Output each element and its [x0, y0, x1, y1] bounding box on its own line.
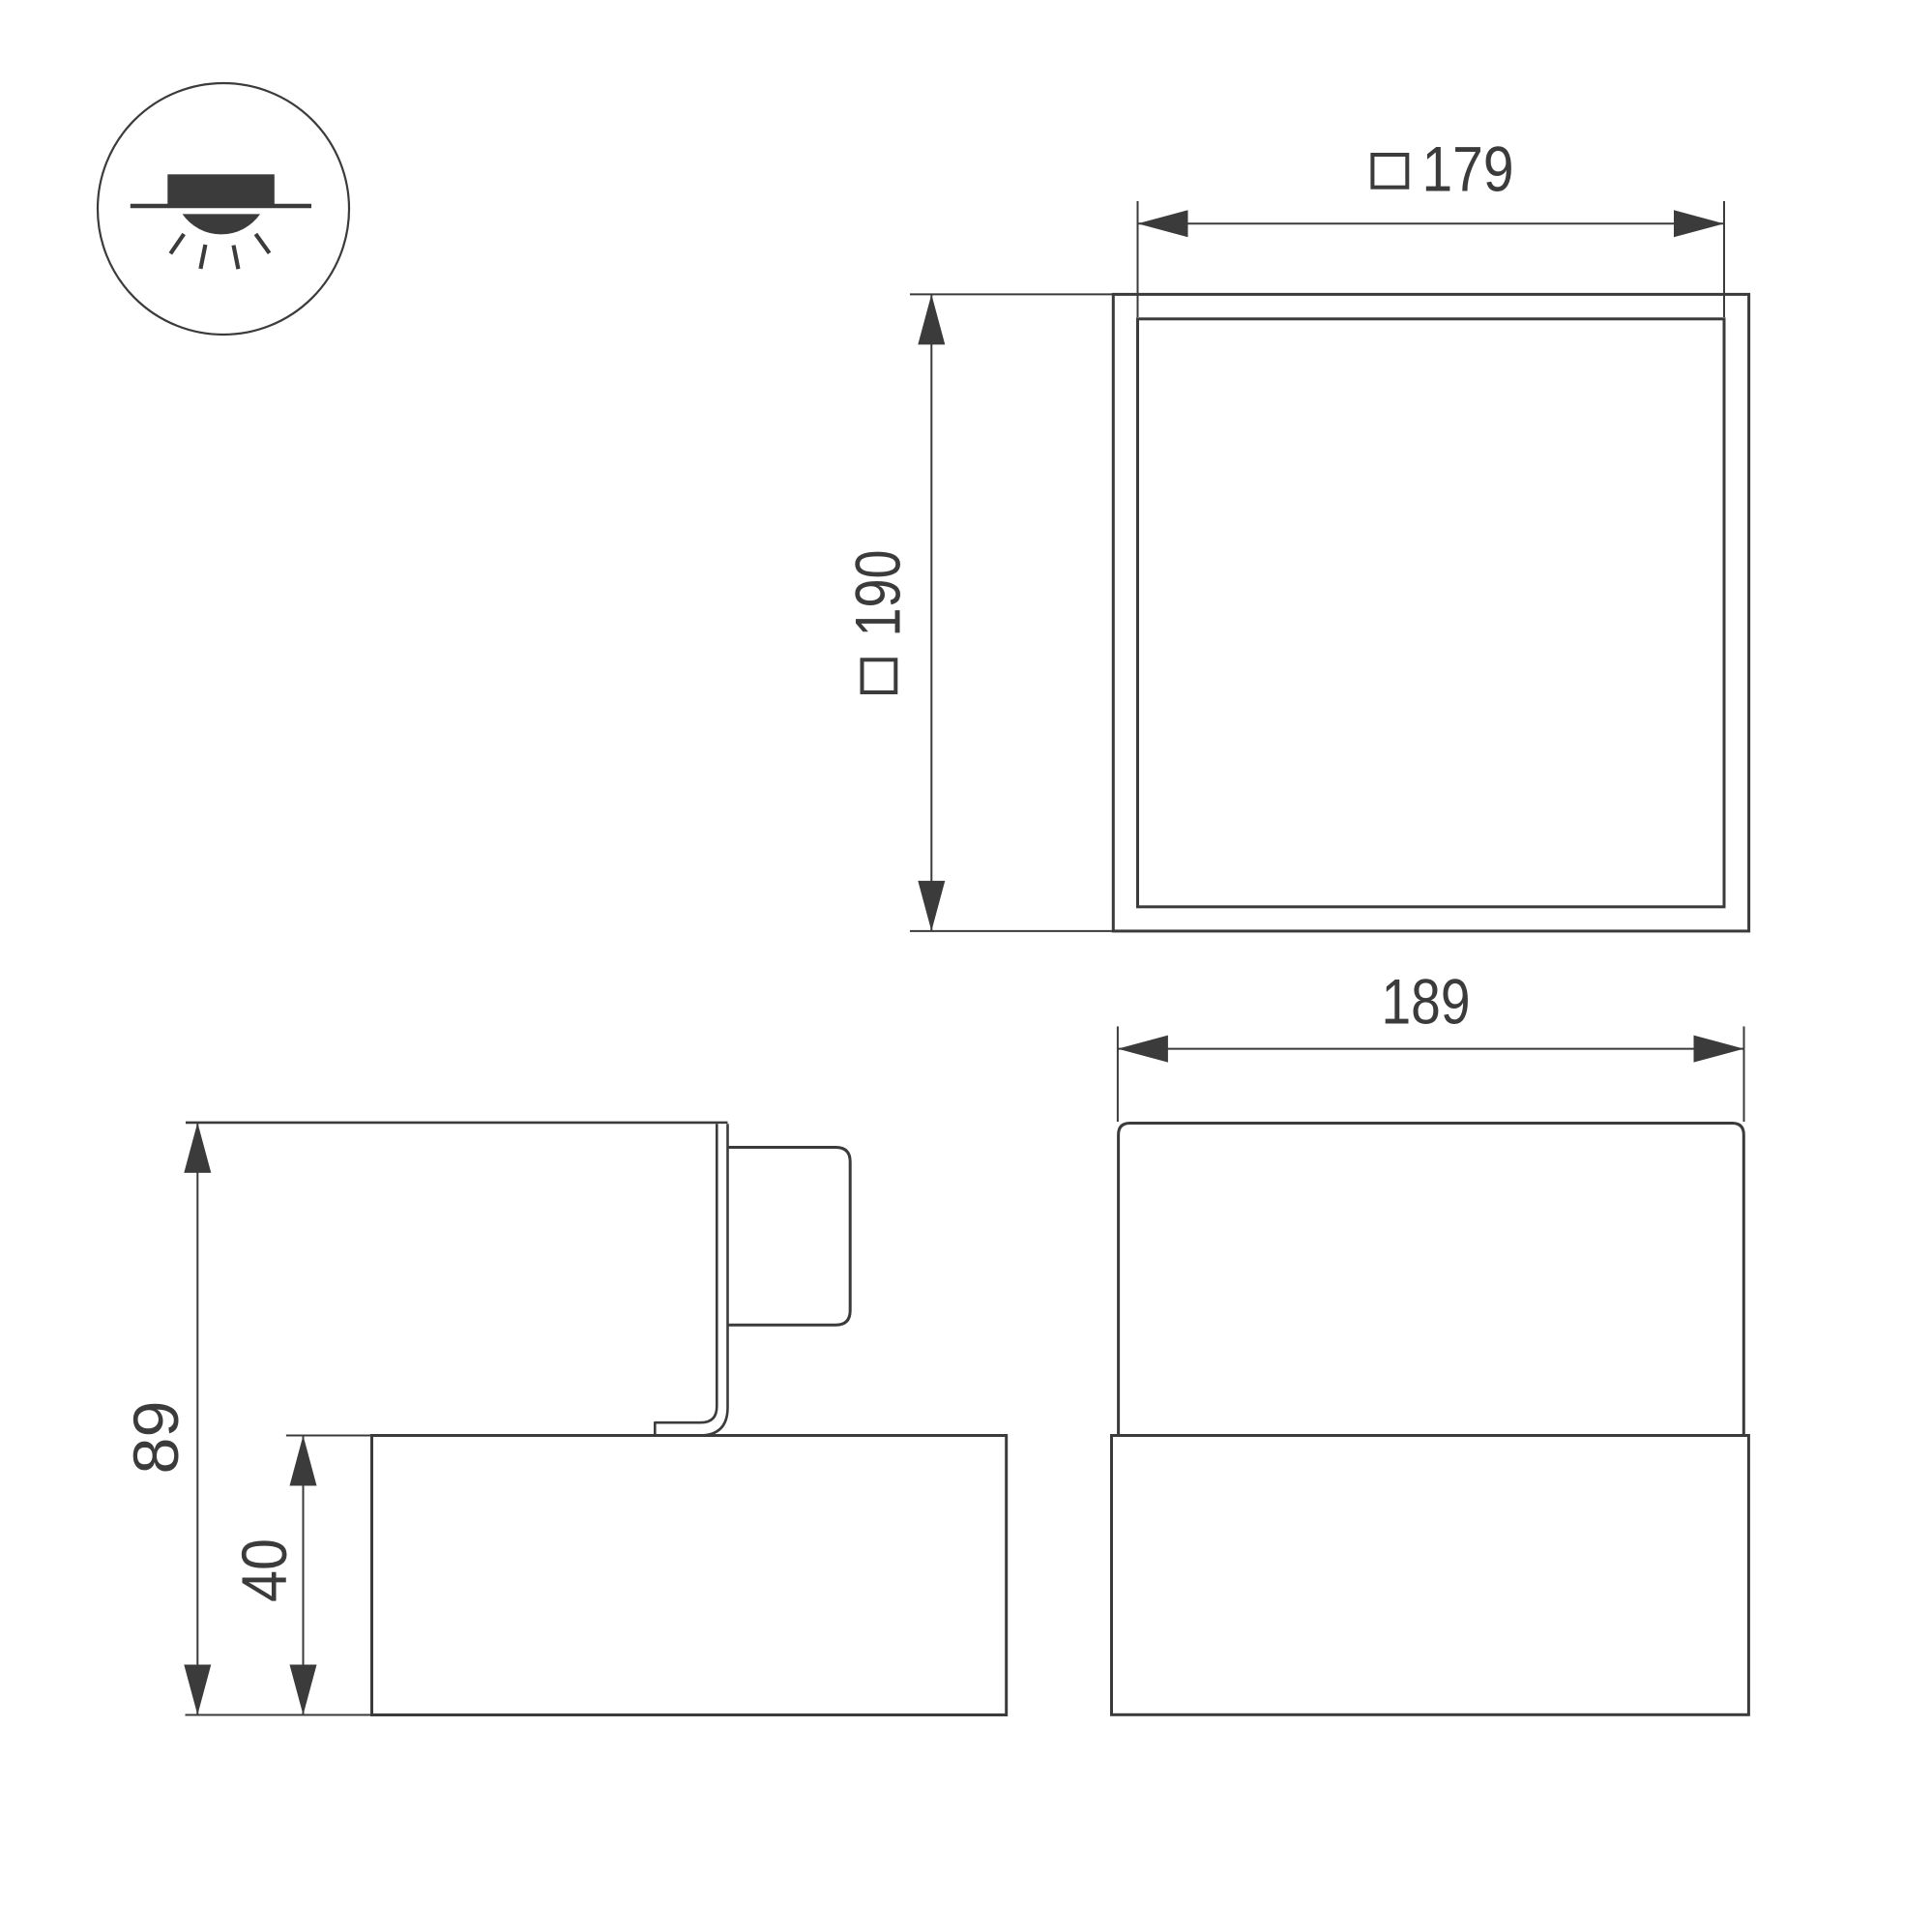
- svg-text:190: 190: [841, 550, 913, 637]
- svg-text:40: 40: [228, 1538, 300, 1602]
- svg-text:189: 189: [1382, 966, 1471, 1038]
- svg-text:179: 179: [1422, 133, 1514, 205]
- svg-text:89: 89: [120, 1401, 191, 1475]
